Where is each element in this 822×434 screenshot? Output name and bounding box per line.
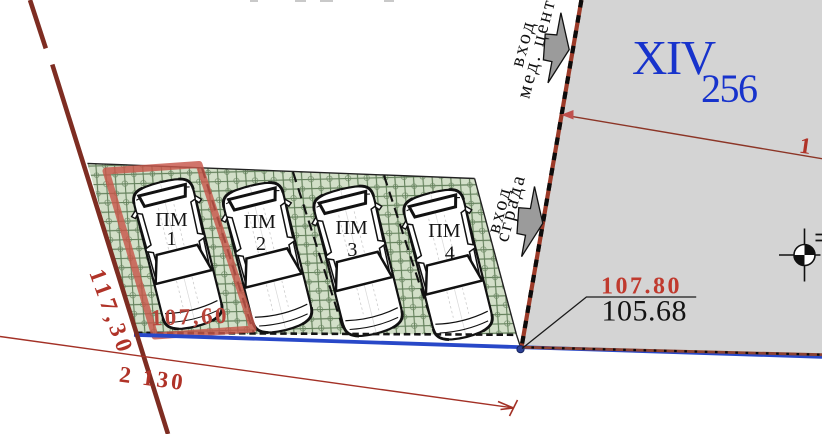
svg-text:1: 1 [167,228,177,250]
svg-text:ПМ: ПМ [335,217,367,239]
svg-text:107,60: 107,60 [150,303,229,331]
svg-text:ПМ: ПМ [244,211,276,233]
svg-text:2: 2 [256,233,266,255]
svg-text:3: 3 [347,239,357,261]
svg-text:ПМ: ПМ [428,220,460,242]
svg-text:105.68: 105.68 [602,295,688,328]
svg-text:4: 4 [445,243,455,265]
svg-text:256: 256 [701,66,757,111]
